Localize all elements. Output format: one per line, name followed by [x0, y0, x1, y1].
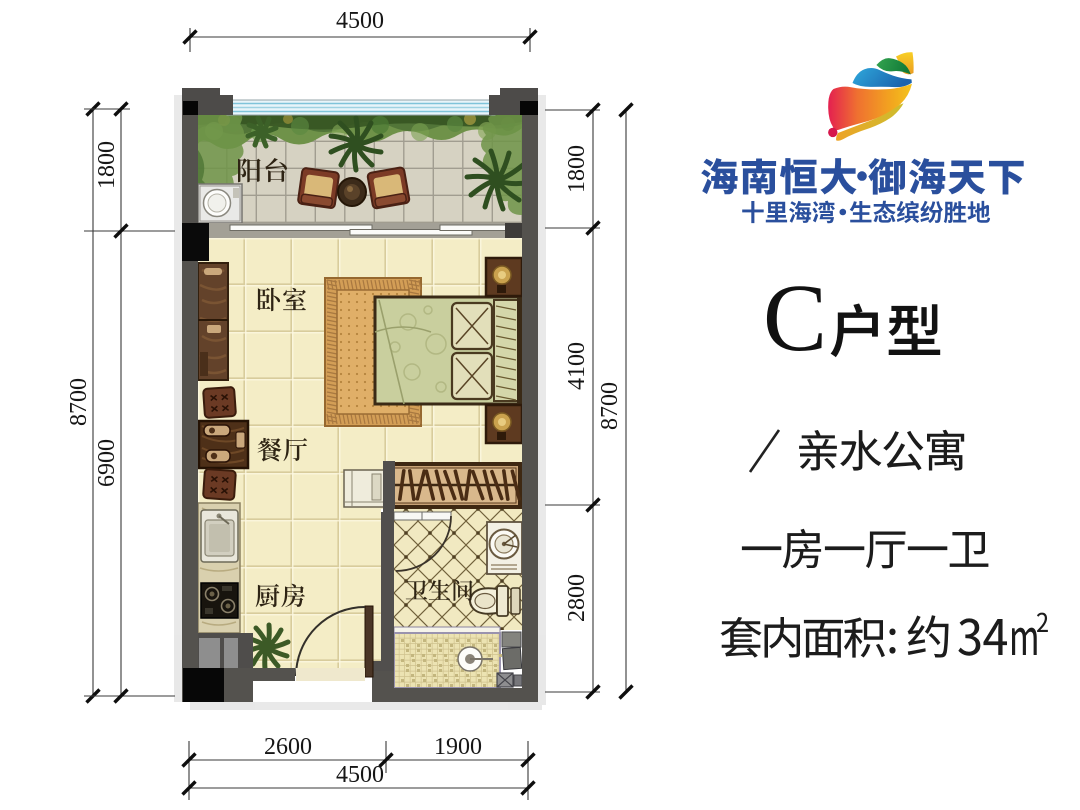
svg-text:4500: 4500	[336, 8, 384, 34]
svg-text:8700: 8700	[66, 378, 92, 426]
svg-text:2600: 2600	[264, 734, 312, 760]
svg-text:6900: 6900	[94, 439, 120, 487]
svg-text:4100: 4100	[564, 342, 590, 390]
svg-text:2800: 2800	[564, 574, 590, 622]
svg-text:4500: 4500	[336, 762, 384, 788]
svg-text:8700: 8700	[597, 382, 623, 430]
svg-text:1900: 1900	[434, 734, 482, 760]
svg-text:1800: 1800	[564, 145, 590, 193]
svg-text:C: C	[763, 264, 827, 371]
svg-text:1800: 1800	[94, 141, 120, 189]
